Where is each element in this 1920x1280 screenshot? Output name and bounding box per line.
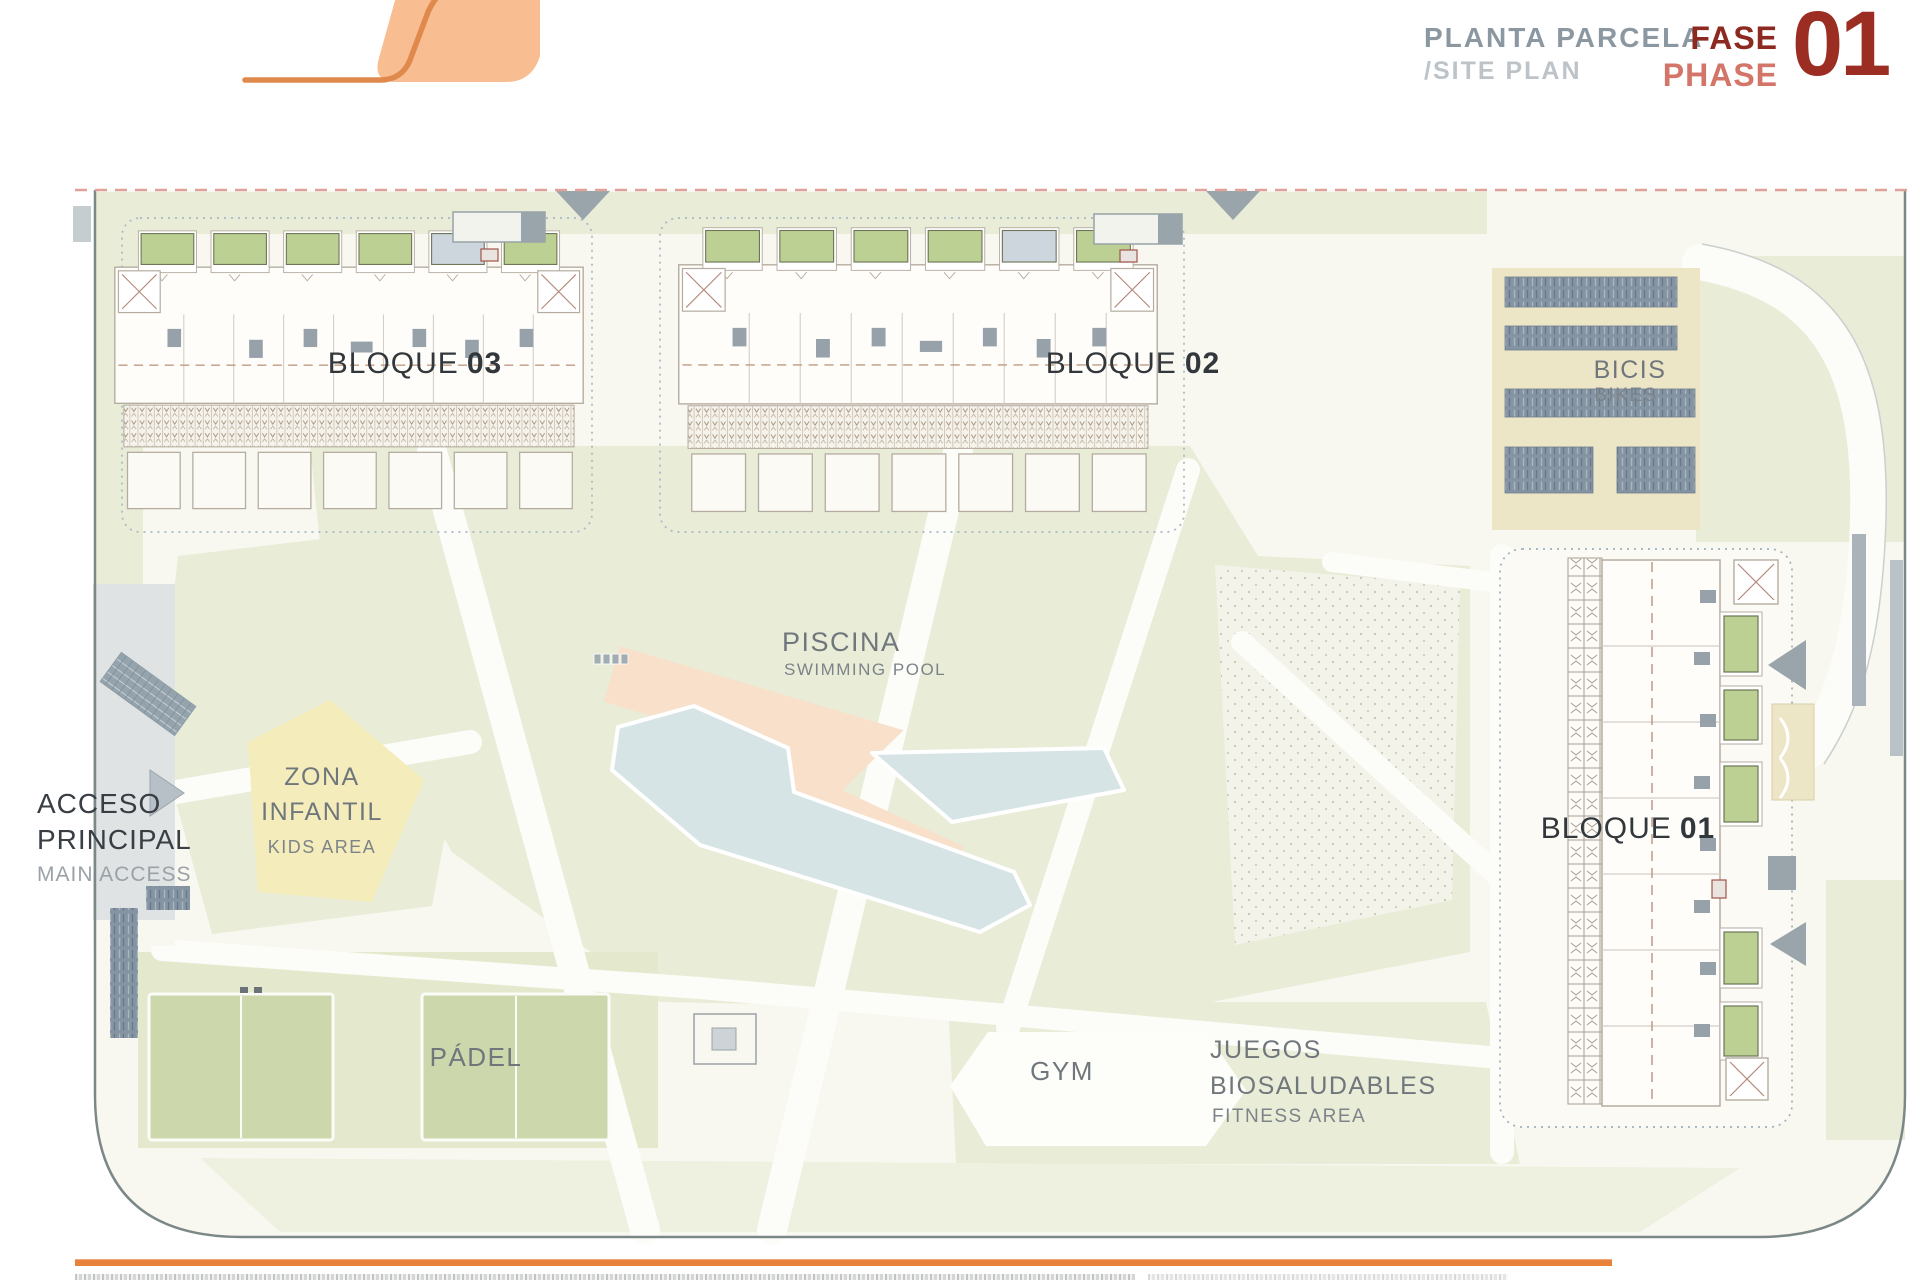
right-edge-strip-1 <box>1852 534 1866 706</box>
access-label-es1: ACCESO <box>37 788 161 819</box>
pool-label-es: PISCINA <box>782 627 901 657</box>
pergola <box>1772 704 1814 800</box>
right-edge-strip-2 <box>1890 560 1903 756</box>
bloque-01-label: BLOQUE01 <box>1541 812 1715 845</box>
fitness-label-es1: JUEGOS <box>1210 1036 1322 1064</box>
bikes-label-en: BIKES <box>1594 385 1657 406</box>
gym-label: GYM <box>1030 1056 1094 1086</box>
footer-microtext <box>75 1274 1135 1280</box>
access-label-en: MAIN ACCESS <box>37 863 192 886</box>
gym-pad <box>950 1032 1246 1146</box>
site-plan-canvas: BLOQUE03 BLOQUE02 BLOQUE01 PISCINA SWIMM… <box>0 0 1920 1280</box>
fitness-label-es2: BIOSALUDABLES <box>1210 1072 1437 1100</box>
padel-label: PÁDEL <box>430 1042 523 1072</box>
kids-label-es1: ZONA <box>284 763 359 791</box>
gravel-area <box>1215 565 1460 945</box>
kids-label-es2: INFANTIL <box>261 798 383 826</box>
access-label-es2: PRINCIPAL <box>37 824 192 855</box>
pool-label-en: SWIMMING POOL <box>784 660 946 679</box>
bikes-label-es: BICIS <box>1594 356 1667 384</box>
bloque-02-label: BLOQUE02 <box>1046 347 1220 380</box>
footer-microtext <box>1148 1274 1508 1280</box>
site-plan-page: PLANTA PARCELA /SITE PLAN FASE PHASE 01 <box>0 0 1920 1280</box>
bloque-03-label: BLOQUE03 <box>328 347 502 380</box>
curb-tab <box>73 206 91 242</box>
fitness-label-en: FITNESS AREA <box>1212 1106 1366 1127</box>
footer-accent-line <box>75 1259 1612 1266</box>
kids-label-en: KIDS AREA <box>268 837 377 857</box>
